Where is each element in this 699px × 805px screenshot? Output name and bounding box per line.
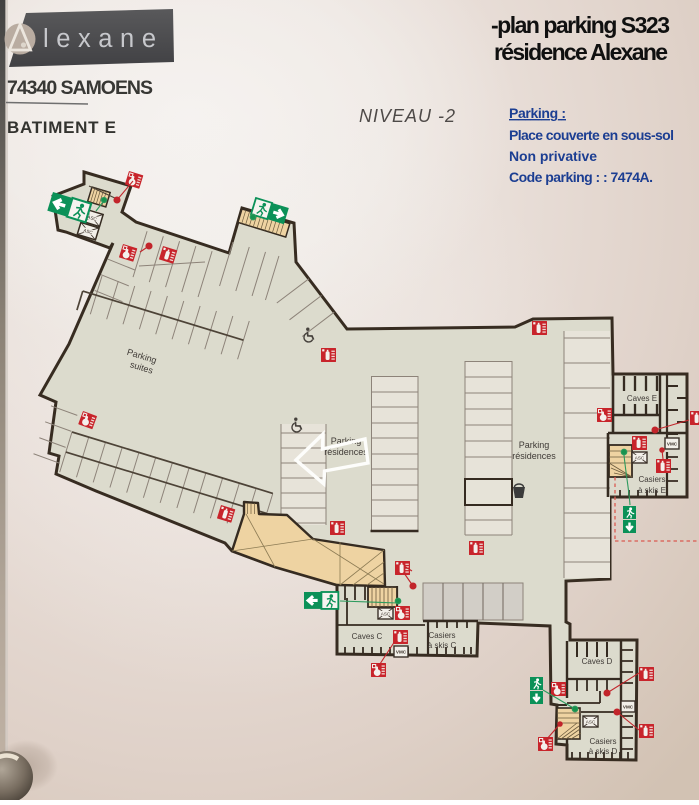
svg-text:Caves C: Caves C [352, 632, 383, 641]
svg-text:lexane: lexane [43, 25, 165, 53]
svg-text:Casiers: Casiers [589, 737, 616, 746]
svg-text:Parking :: Parking : [509, 105, 566, 121]
svg-text:Caves D: Caves D [582, 657, 613, 666]
svg-text:Code parking : : 7474A.: Code parking : : 7474A. [509, 169, 653, 185]
svg-text:74340 SAMOENS: 74340 SAMOENS [7, 77, 153, 99]
svg-text:-plan parking S323: -plan parking S323 [491, 12, 670, 38]
svg-text:Caves E: Caves E [627, 394, 657, 403]
svg-text:Non privative: Non privative [509, 148, 597, 164]
svg-text:à skis D: à skis D [589, 747, 618, 756]
svg-text:à skis E: à skis E [638, 486, 666, 495]
svg-text:résidences: résidences [512, 451, 556, 461]
svg-text:résidence Alexane: résidence Alexane [494, 39, 668, 65]
svg-text:Casiers: Casiers [428, 631, 455, 640]
svg-text:Parking: Parking [519, 440, 550, 450]
svg-text:BATIMENT E: BATIMENT E [7, 118, 116, 137]
svg-text:Casiers: Casiers [638, 475, 665, 484]
svg-text:NIVEAU -2: NIVEAU -2 [359, 106, 455, 126]
svg-text:Place couverte en sous-sol: Place couverte en sous-sol [509, 127, 674, 143]
svg-text:à skis C: à skis C [428, 641, 457, 650]
